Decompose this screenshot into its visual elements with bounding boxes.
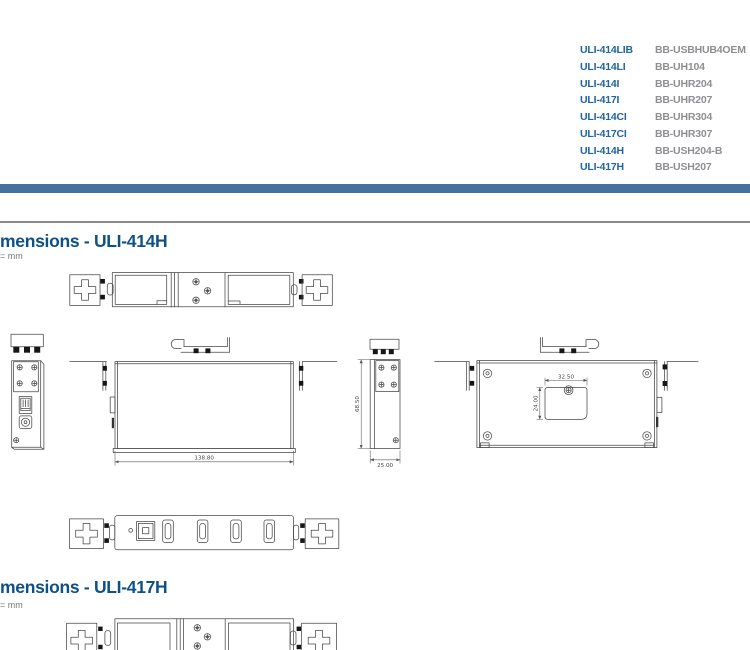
- side-profile-view-drawing: 68.50 25.00: [355, 339, 400, 469]
- rear-view-drawing: 32.50 24.00: [435, 338, 698, 448]
- datasheet-page: { "product_table": { "rows": [ {"model":…: [0, 0, 750, 650]
- depth-dimension: 25.00: [370, 451, 400, 470]
- side-panel-view-drawing: [11, 334, 44, 449]
- height-dimension: 68.50: [355, 360, 370, 449]
- height-dimension-value: 68.50: [355, 396, 361, 412]
- cutout-width-dimension: 32.50: [545, 374, 587, 385]
- width-dimension-value: 138.80: [194, 456, 214, 462]
- top-view-drawing: [70, 273, 333, 307]
- depth-dimension-value: 25.00: [377, 463, 393, 469]
- usb-a-port: [163, 520, 174, 542]
- usb-a-port: [197, 520, 208, 542]
- cutout-height-value: 24.00: [533, 395, 539, 411]
- cutout-height-dimension: 24.00: [533, 387, 543, 419]
- led-indicator: [129, 529, 133, 533]
- width-dimension: 138.80: [115, 451, 293, 466]
- usb-a-port: [231, 520, 242, 542]
- usb-b-port: [137, 522, 155, 541]
- front-view-drawing: 138.80: [70, 338, 337, 466]
- usb-a-port: [264, 520, 275, 542]
- front-panel-ports-drawing: [70, 516, 339, 550]
- cutout-width-value: 32.50: [558, 374, 574, 380]
- uli-417h-top-view-drawing: [67, 619, 337, 650]
- dimension-drawings: 138.80 68.50 25.00: [0, 0, 750, 650]
